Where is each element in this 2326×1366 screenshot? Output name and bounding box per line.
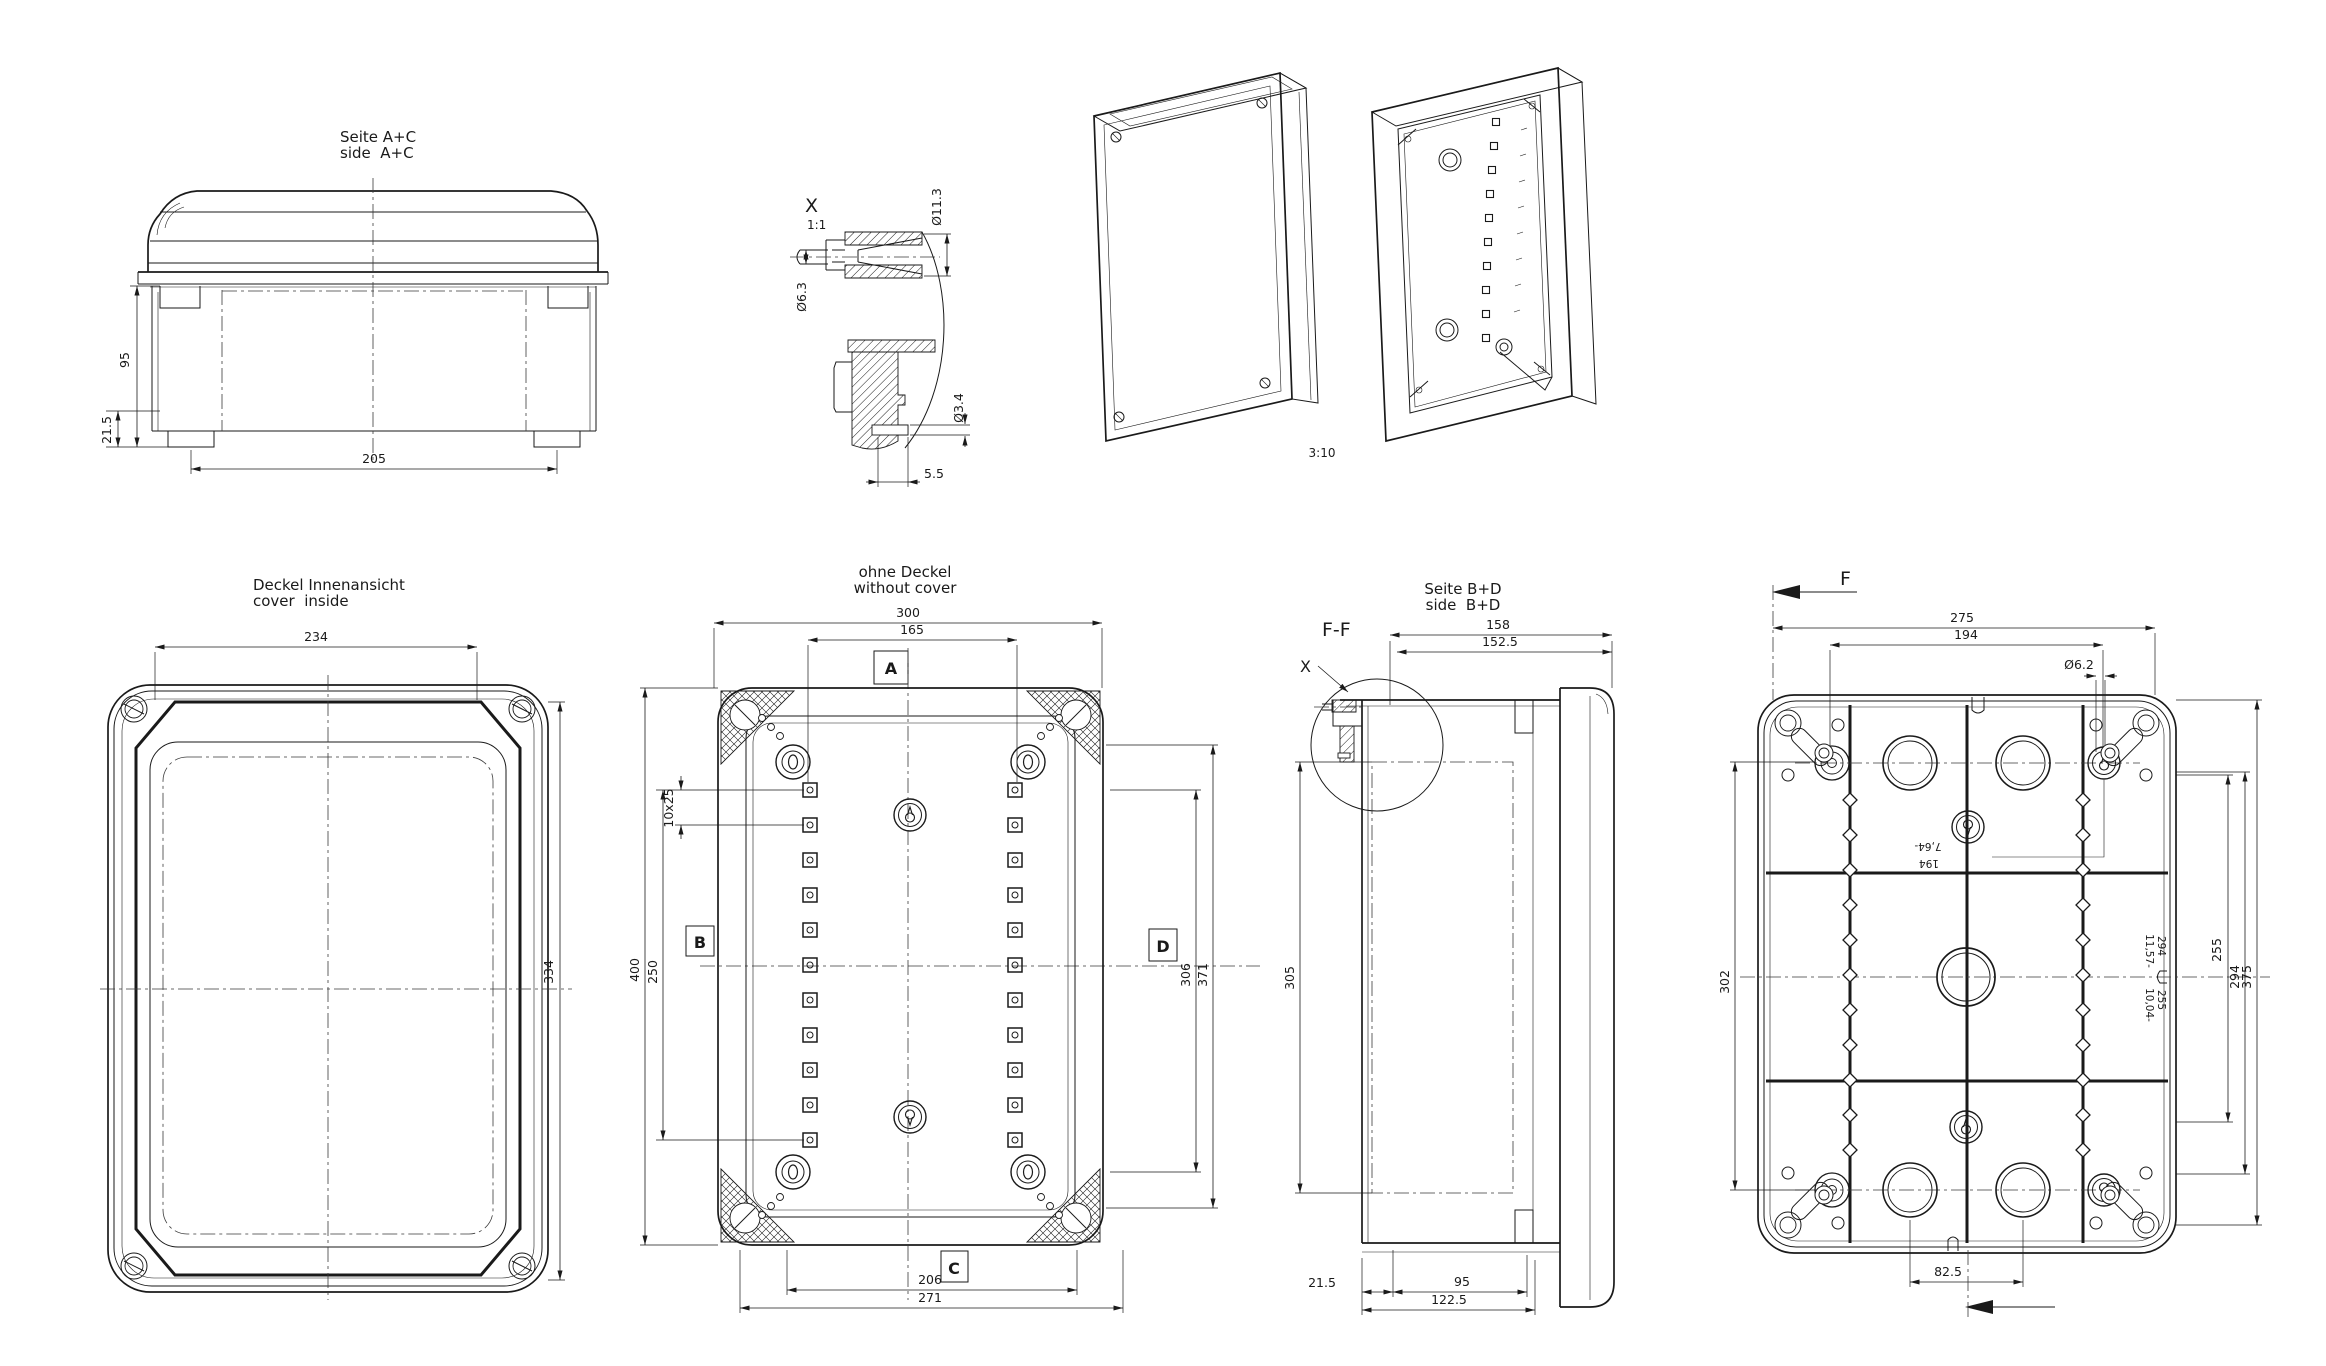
emboss-in-2: 11,57- (2143, 934, 2155, 968)
dim-271-label: 271 (918, 1290, 942, 1305)
dim-305-label: 305 (1282, 966, 1297, 990)
section-ff-label: F-F (1322, 619, 1351, 641)
view-detail-x: X 1:1 Ø11.3 Ø6.3 Ø3.4 5.5 (790, 188, 970, 487)
dim-158-label: 158 (1486, 617, 1510, 632)
dim-dia-3-4: Ø3.4 (951, 393, 966, 423)
detail-callout-x: X (1300, 657, 1311, 676)
dim-152-5-label: 152.5 (1482, 634, 1518, 649)
dim-234-label: 234 (304, 629, 328, 644)
dim-250-label: 250 (645, 960, 660, 984)
dim-400-label: 400 (627, 958, 642, 982)
dim-302-label: 302 (1717, 970, 1732, 994)
drawing-sheet: Seite A+C side A+C 95 21.5 205 (0, 0, 2326, 1366)
detail-x-label: X (805, 195, 818, 217)
dim-371-label: 371 (1195, 963, 1210, 987)
side-label-c: C (948, 1259, 960, 1278)
dim-82-5-label: 82.5 (1934, 1264, 1962, 1279)
side-label-b: B (694, 933, 706, 952)
emboss-mm-2: 294 (2155, 936, 2167, 956)
section-f-label: F (1840, 568, 1851, 590)
technical-drawing-canvas: Seite A+C side A+C 95 21.5 205 (0, 0, 2326, 1366)
emboss-mm-3: 255 (2155, 990, 2167, 1010)
view-side-ac: Seite A+C side A+C 95 21.5 205 (99, 128, 608, 474)
section-arrow-f-top (1772, 585, 1800, 599)
emboss-mm-1: 194 (1919, 857, 1939, 869)
iso-open-box (1372, 68, 1596, 441)
detail-x-scale: 1:1 (807, 218, 826, 232)
dim-dia-11-3: Ø11.3 (929, 188, 944, 226)
dim-275-label: 275 (1950, 610, 1974, 625)
dim-300-label: 300 (896, 605, 920, 620)
dim-255-label: 255 (2209, 938, 2224, 962)
side-label-a: A (885, 659, 898, 678)
view-without-cover: ohne Deckel without cover 300 165 A B D … (627, 563, 1260, 1313)
view-isometric: 3:10 (1094, 68, 1596, 460)
iso-scale-label: 3:10 (1309, 446, 1336, 460)
section-arrow-f-bottom (1965, 1300, 1993, 1314)
dim-165-label: 165 (900, 622, 924, 637)
view-bottom: F 275 194 Ø6.2 (1717, 568, 2270, 1318)
cover-title-en: cover inside (253, 592, 349, 610)
dim-5-5: 5.5 (924, 466, 944, 481)
dim-205-label: 205 (362, 451, 386, 466)
side-ac-title-en: side A+C (340, 144, 414, 162)
dim-122-5-label: 122.5 (1431, 1292, 1467, 1307)
dim-dia-6-3: Ø6.3 (794, 282, 809, 312)
iso-closed-box (1094, 73, 1318, 441)
view-cover-inside: Deckel Innenansicht cover inside 234 334 (100, 576, 572, 1300)
dim-206-label: 206 (918, 1272, 942, 1287)
open-title-en: without cover (854, 579, 958, 597)
emboss-inch-1: 7,64- (1914, 840, 1941, 852)
dim-21-5-label: 21.5 (99, 416, 114, 444)
dim-375-label: 375 (2239, 965, 2254, 989)
dim-dia-6-2-label: Ø6.2 (2064, 657, 2094, 672)
dim-bd-95-label: 95 (1454, 1274, 1470, 1289)
dim-bd-21-5-label: 21.5 (1308, 1275, 1336, 1290)
emboss-in-3: 10,04- (2143, 988, 2155, 1022)
dim-95-label: 95 (117, 352, 132, 368)
dim-10x25-label: 10x25 (661, 788, 676, 827)
view-side-bd: Seite B+D side B+D F-F X 158 152.5 (1282, 580, 1614, 1315)
dim-306-label: 306 (1178, 963, 1193, 987)
side-label-d: D (1156, 937, 1169, 956)
bd-title-en: side B+D (1426, 596, 1501, 614)
dim-194-label: 194 (1954, 627, 1978, 642)
dim-334-label: 334 (541, 960, 556, 984)
